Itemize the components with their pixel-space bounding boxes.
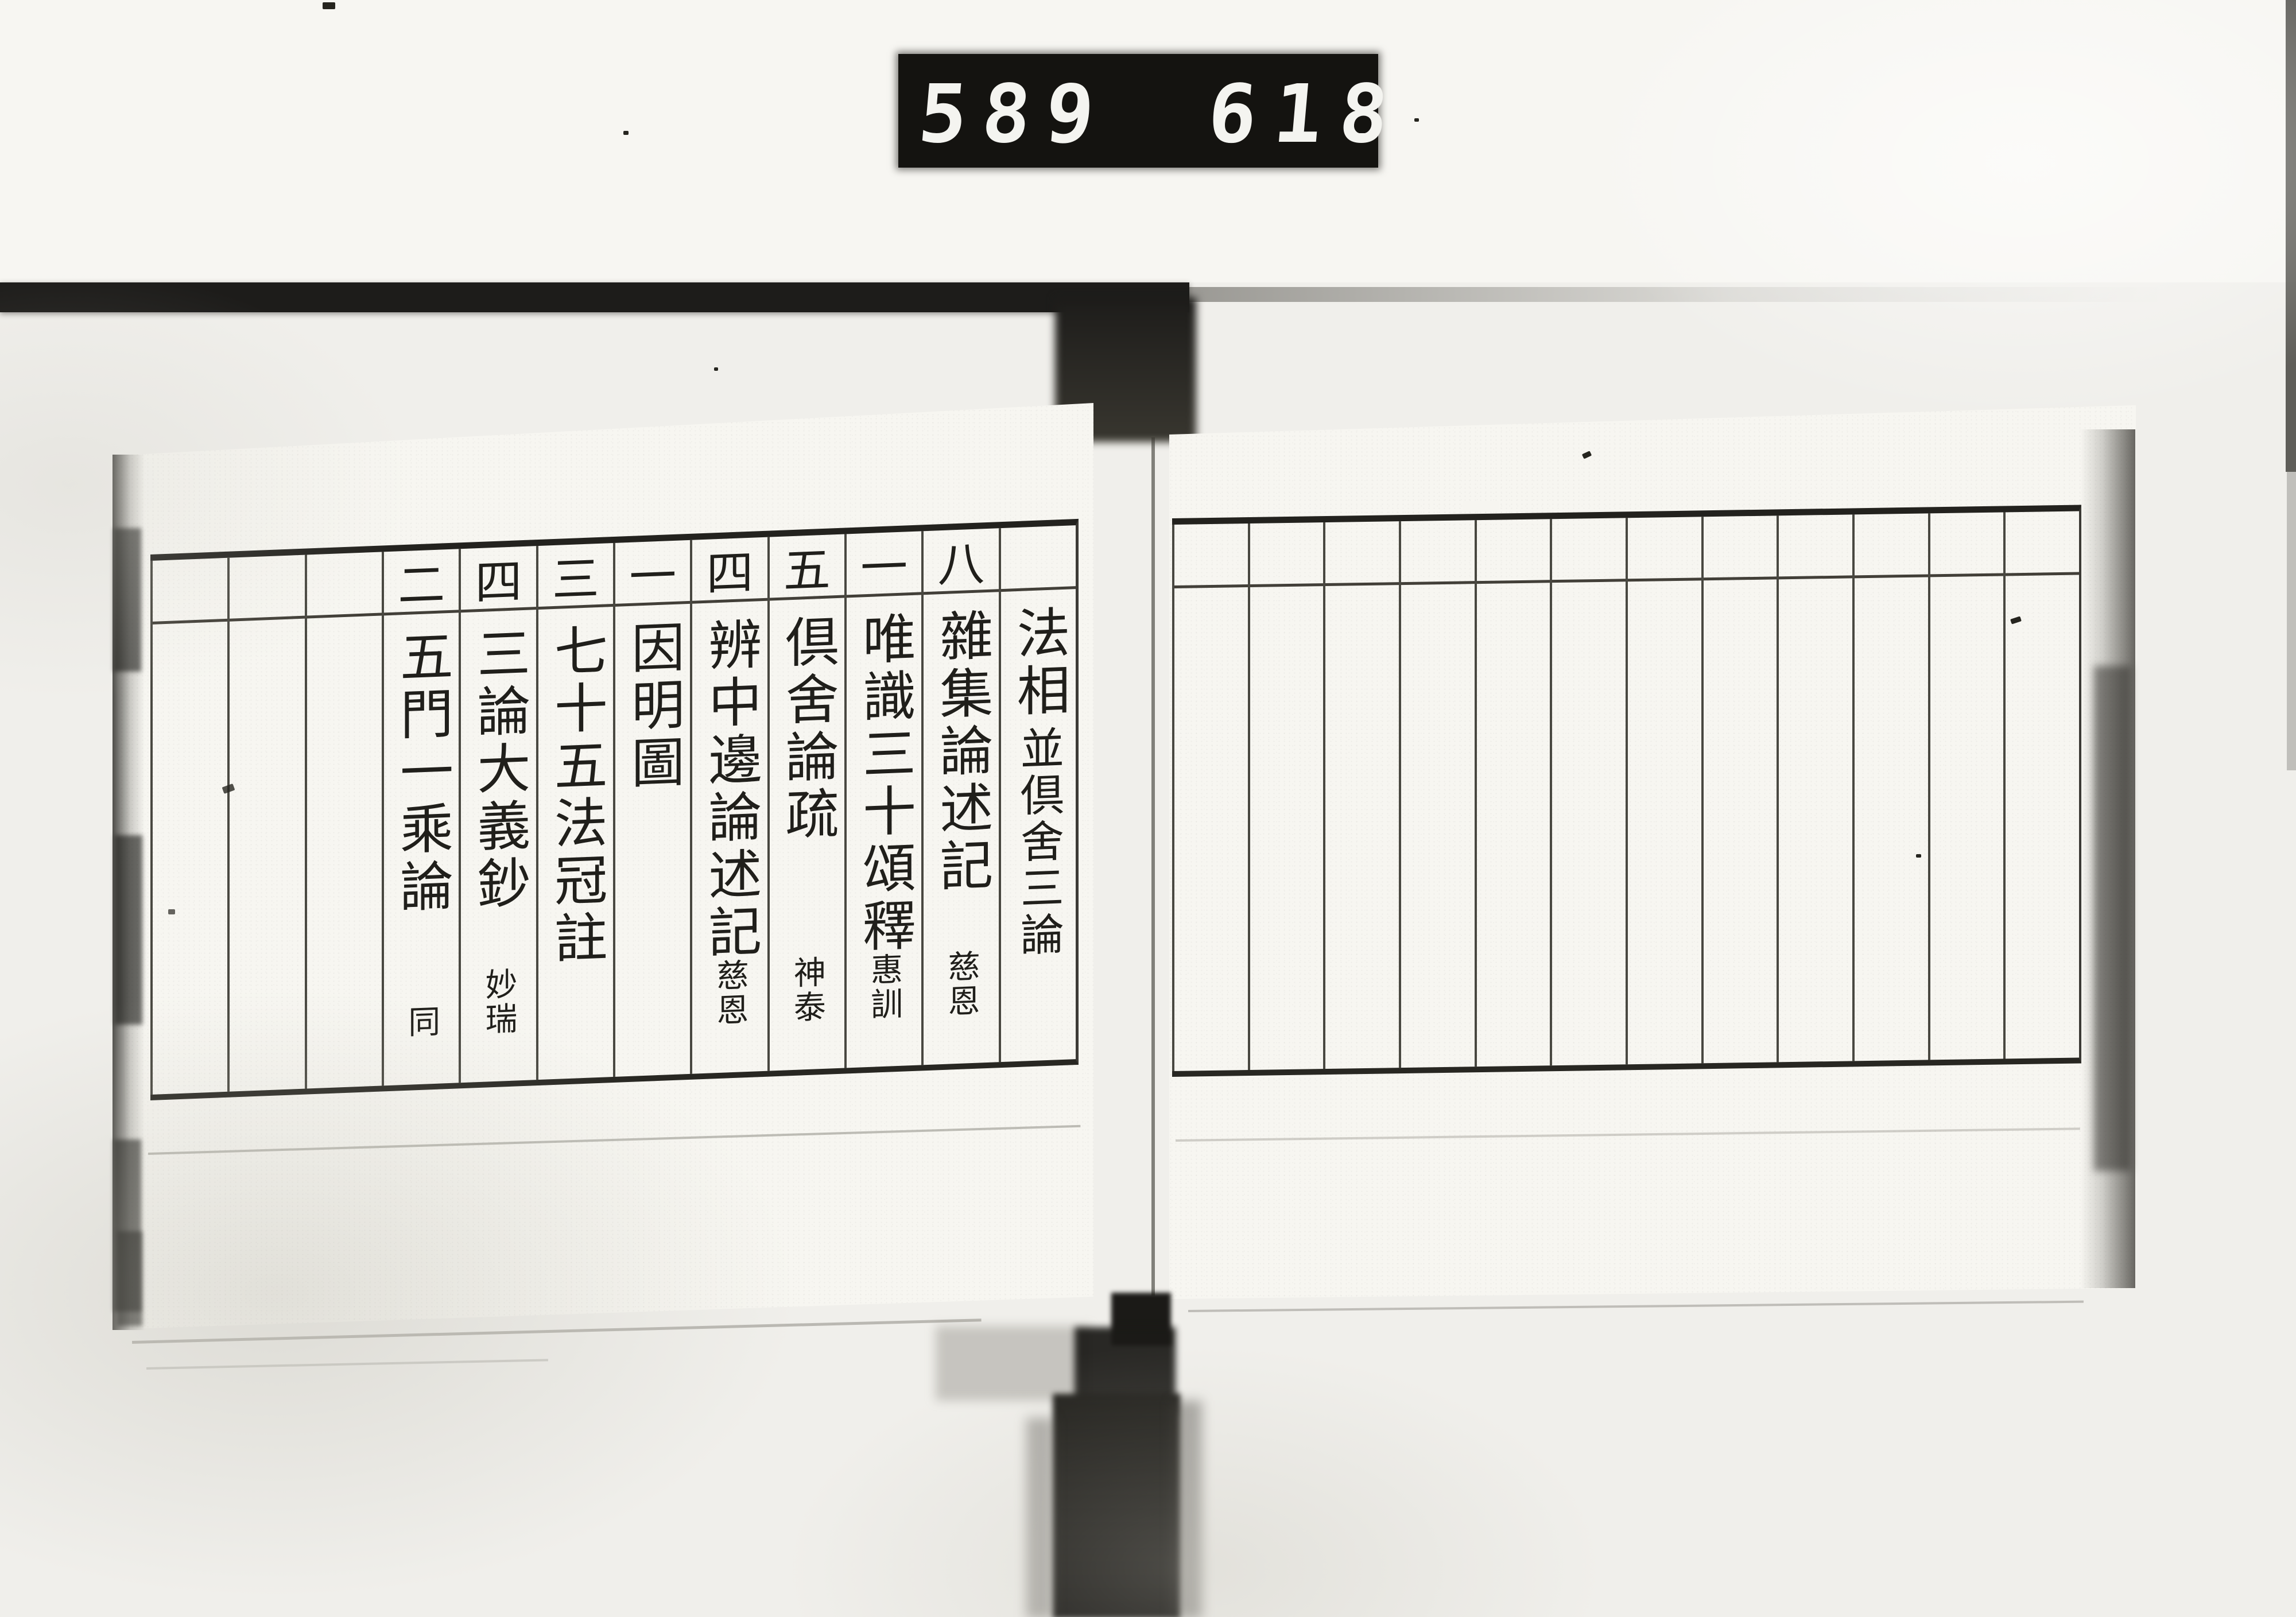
toc-column: 八雜集論述記慈恩: [921, 528, 998, 1065]
toc-column: 三七十五法冠註: [536, 543, 613, 1080]
empty-column: [1928, 513, 2004, 1060]
empty-column-body: [1325, 585, 1399, 1069]
fascicle-number: 二: [398, 546, 445, 616]
binding-smudge-blob: [115, 835, 142, 1025]
fascicle-number: 八: [938, 525, 985, 595]
fascicle-number-cell: 一: [847, 531, 921, 598]
fascicle-number-cell: 二: [384, 549, 459, 615]
empty-column-body: [1855, 577, 1928, 1061]
empty-number-cell: [1855, 513, 1928, 578]
empty-number-cell: [1628, 517, 1701, 581]
gutter-shadow-bottom-fade: [1026, 1418, 1055, 1617]
empty-column-body: [1250, 586, 1324, 1070]
toc-column-body: 因明圖: [615, 604, 690, 1077]
scan-dark-band: [0, 282, 1189, 312]
toc-column-body: [230, 619, 304, 1092]
dust-speck: [623, 131, 629, 135]
toc-title: 三論大義鈔: [471, 625, 527, 914]
stacked-page-edge-line: [146, 1359, 548, 1370]
toc-column-body: 七十五法冠註: [538, 607, 613, 1080]
toc-column-body: [307, 616, 382, 1089]
dust-speck: [1916, 854, 1921, 858]
empty-number-cell: [1930, 513, 2004, 577]
toc-title: 法相: [1010, 604, 1066, 722]
fascicle-number: 一: [629, 537, 676, 607]
fascicle-number-cell: 八: [924, 528, 998, 595]
fascicle-number: 一: [860, 528, 907, 598]
empty-column: [1701, 515, 1777, 1063]
stacked-page-edge-line: [1188, 1301, 2084, 1312]
empty-column-body: [1930, 576, 2004, 1060]
dust-speck: [714, 367, 718, 371]
toc-column-body: 倶舍論疏神泰: [770, 598, 844, 1071]
left-toc-table: 法相並倶舍三論八雜集論述記慈恩一唯識三十頌釋惠訓五倶舍論疏神泰四辨中邊論述記慈恩…: [150, 519, 1079, 1100]
toc-column-body: 五門一乘論同: [384, 612, 459, 1085]
empty-column: [1852, 513, 1928, 1061]
right-page-edge-smudge-dark: [2094, 666, 2131, 1171]
page-stack-shadow-wedge: [936, 1326, 1091, 1401]
frame-counter-right-value: 618: [1204, 68, 1409, 161]
toc-column: 法相並倶舍三論: [999, 525, 1076, 1062]
empty-column: [1626, 517, 1701, 1064]
toc-column-body: 法相並倶舍三論: [1001, 589, 1076, 1062]
empty-column: [1550, 518, 1626, 1065]
fascicle-number-cell: 四: [692, 537, 767, 604]
empty-number-cell: [1552, 518, 1626, 583]
empty-column: [1172, 524, 1248, 1071]
toc-subtitle: 並倶舍三論: [1007, 724, 1070, 959]
fascicle-number-cell: [230, 555, 304, 622]
toc-column: [150, 558, 227, 1095]
toc-column: 四三論大義鈔妙瑞: [459, 546, 536, 1083]
toc-author: 慈恩: [707, 958, 753, 1029]
scan-band-faint-streak: [1189, 287, 2165, 302]
toc-column-body: 辨中邊論述記慈恩: [692, 601, 767, 1074]
empty-column: [1399, 520, 1475, 1068]
empty-column: [2003, 511, 2079, 1059]
fascicle-number-cell: 一: [615, 540, 690, 607]
toc-column-body: 三論大義鈔妙瑞: [461, 610, 536, 1083]
empty-column-body: [1552, 581, 1626, 1065]
empty-column: [1248, 522, 1324, 1070]
dust-speck: [323, 2, 335, 9]
frame-counter-display: 589 618: [898, 54, 1378, 168]
toc-column: [227, 555, 304, 1092]
fascicle-number-cell: [153, 558, 227, 625]
toc-author: 慈恩: [938, 949, 984, 1019]
stray-mark: [168, 909, 175, 914]
empty-column-body: [1401, 584, 1475, 1068]
scanned-book-frame: 589 618 法相並倶舍三論八雜集論述記慈恩一唯識三十頌釋惠訓五倶舍論疏神泰四…: [0, 0, 2296, 1617]
toc-title: 辨中邊論述記: [702, 616, 758, 963]
toc-author: 妙瑞: [475, 967, 522, 1037]
frame-counter-left-value: 589: [915, 68, 1113, 161]
empty-number-cell: [1250, 522, 1324, 587]
empty-column-body: [1174, 587, 1248, 1071]
binding-smudge-blob: [114, 528, 141, 672]
toc-author: 神泰: [784, 955, 830, 1026]
fascicle-number: 三: [552, 540, 599, 610]
fascicle-number-cell: [1001, 525, 1076, 592]
toc-column: 二五門一乘論同: [382, 549, 459, 1085]
gutter-shadow-bottom: [1053, 1394, 1180, 1617]
toc-author: 同: [398, 1004, 445, 1040]
toc-column: 五倶舍論疏神泰: [767, 534, 844, 1071]
empty-number-cell: [1477, 519, 1550, 584]
fascicle-number-cell: [307, 552, 382, 619]
binding-smudge-blob: [117, 1231, 142, 1326]
toc-title: 五門一乘論: [393, 628, 449, 917]
toc-title: 雜集論述記: [933, 607, 990, 897]
toc-column: [305, 552, 382, 1089]
toc-column: 一唯識三十頌釋惠訓: [844, 531, 921, 1068]
empty-column-body: [1779, 578, 1852, 1062]
empty-number-cell: [1779, 514, 1852, 579]
top-rule-break: [1463, 501, 1499, 510]
empty-column: [1475, 519, 1550, 1067]
fascicle-number: 四: [475, 543, 522, 613]
empty-column-body: [2006, 575, 2079, 1059]
empty-column: [1777, 514, 1852, 1062]
toc-author: 惠訓: [861, 952, 907, 1022]
fascicle-number: 五: [784, 531, 831, 601]
gutter-shadow-bottom-fade: [1172, 1401, 1202, 1617]
toc-title: 七十五法冠註: [548, 622, 604, 969]
fascicle-number-cell: 五: [770, 534, 844, 601]
toc-column-body: [153, 622, 227, 1095]
film-edge-strip-fade: [2287, 472, 2296, 770]
empty-number-cell: [2006, 511, 2079, 576]
empty-column-body: [1628, 580, 1701, 1064]
toc-title: 唯識三十頌釋: [856, 610, 912, 957]
center-leaf-edge-line: [1151, 437, 1155, 1296]
toc-title: 倶舍論疏: [779, 613, 835, 845]
counter-decimal-dot: [1357, 133, 1366, 142]
right-toc-table: [1172, 505, 2081, 1077]
fascicle-number-cell: 三: [538, 543, 613, 610]
empty-number-cell: [1401, 520, 1475, 585]
toc-column-body: 唯識三十頌釋惠訓: [847, 595, 921, 1068]
empty-number-cell: [1704, 515, 1777, 580]
empty-column: [1323, 521, 1399, 1069]
fascicle-number-cell: 四: [461, 546, 536, 612]
film-edge-strip: [2286, 0, 2296, 472]
empty-number-cell: [1174, 524, 1248, 588]
empty-column-body: [1477, 583, 1550, 1067]
empty-number-cell: [1325, 521, 1399, 586]
toc-column: 四辨中邊論述記慈恩: [690, 537, 767, 1074]
toc-title: 因明圖: [625, 619, 681, 794]
toc-column-body: 雜集論述記慈恩: [924, 592, 998, 1065]
empty-column-body: [1704, 579, 1777, 1063]
dust-speck: [1414, 118, 1419, 122]
toc-column: 一因明圖: [613, 540, 690, 1077]
fascicle-number: 四: [707, 534, 754, 604]
